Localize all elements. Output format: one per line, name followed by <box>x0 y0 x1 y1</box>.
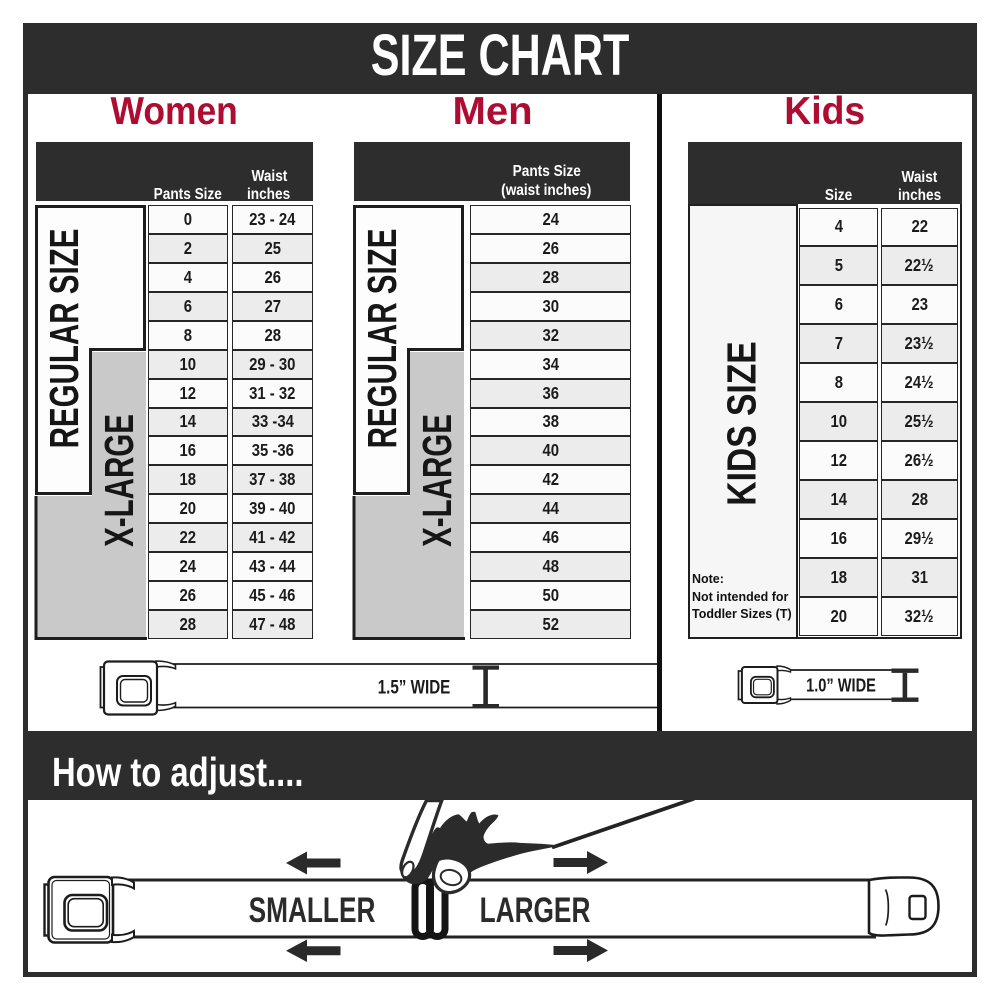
svg-text:1.0” WIDE: 1.0” WIDE <box>806 675 876 696</box>
svg-text:1.5” WIDE: 1.5” WIDE <box>378 676 451 698</box>
svg-text:LARGER: LARGER <box>480 890 591 930</box>
svg-text:SMALLER: SMALLER <box>249 890 376 930</box>
